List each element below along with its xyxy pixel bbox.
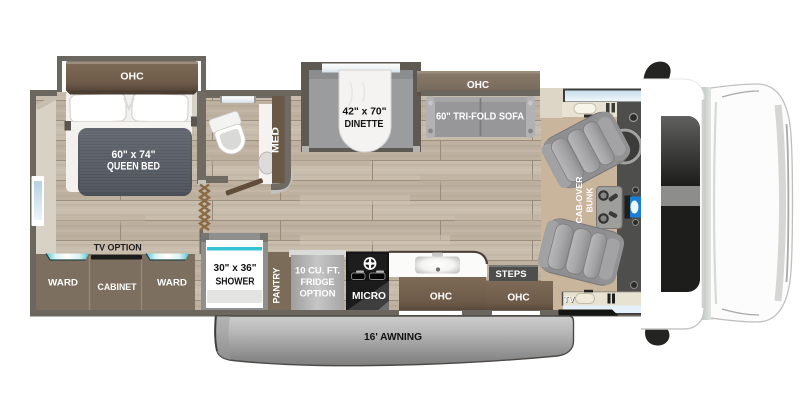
svg-text:STEPS: STEPS: [496, 269, 527, 280]
svg-text:MED: MED: [271, 127, 282, 153]
svg-text:10 CU. FT.: 10 CU. FT.: [295, 266, 340, 276]
svg-text:OHC: OHC: [467, 80, 489, 91]
svg-text:60" x 74": 60" x 74": [112, 149, 156, 161]
svg-text:CAB-OVER: CAB-OVER: [574, 176, 584, 224]
svg-text:42" x 70": 42" x 70": [343, 106, 387, 118]
svg-text:WARD: WARD: [157, 278, 187, 289]
svg-text:FRIDGE: FRIDGE: [301, 277, 335, 287]
svg-text:30" x 36": 30" x 36": [214, 263, 257, 274]
svg-text:QUEEN BED: QUEEN BED: [107, 161, 160, 173]
svg-text:60" TRI-FOLD SOFA: 60" TRI-FOLD SOFA: [436, 112, 524, 123]
svg-text:WARD: WARD: [48, 278, 78, 289]
svg-text:PANTRY: PANTRY: [272, 268, 282, 304]
svg-text:CABINET: CABINET: [98, 282, 137, 293]
svg-text:OPTION: OPTION: [300, 289, 336, 299]
svg-text:OHC: OHC: [120, 71, 144, 83]
svg-text:OHC: OHC: [507, 293, 529, 304]
svg-text:SHOWER: SHOWER: [216, 277, 256, 288]
svg-text:16' AWNING: 16' AWNING: [364, 332, 422, 343]
svg-text:OHC: OHC: [430, 292, 452, 303]
svg-text:TV: TV: [564, 296, 576, 305]
svg-text:DINETTE: DINETTE: [345, 118, 384, 130]
svg-text:TV OPTION: TV OPTION: [94, 243, 142, 254]
svg-text:BUNK: BUNK: [585, 187, 595, 213]
svg-text:MICRO: MICRO: [352, 291, 386, 302]
